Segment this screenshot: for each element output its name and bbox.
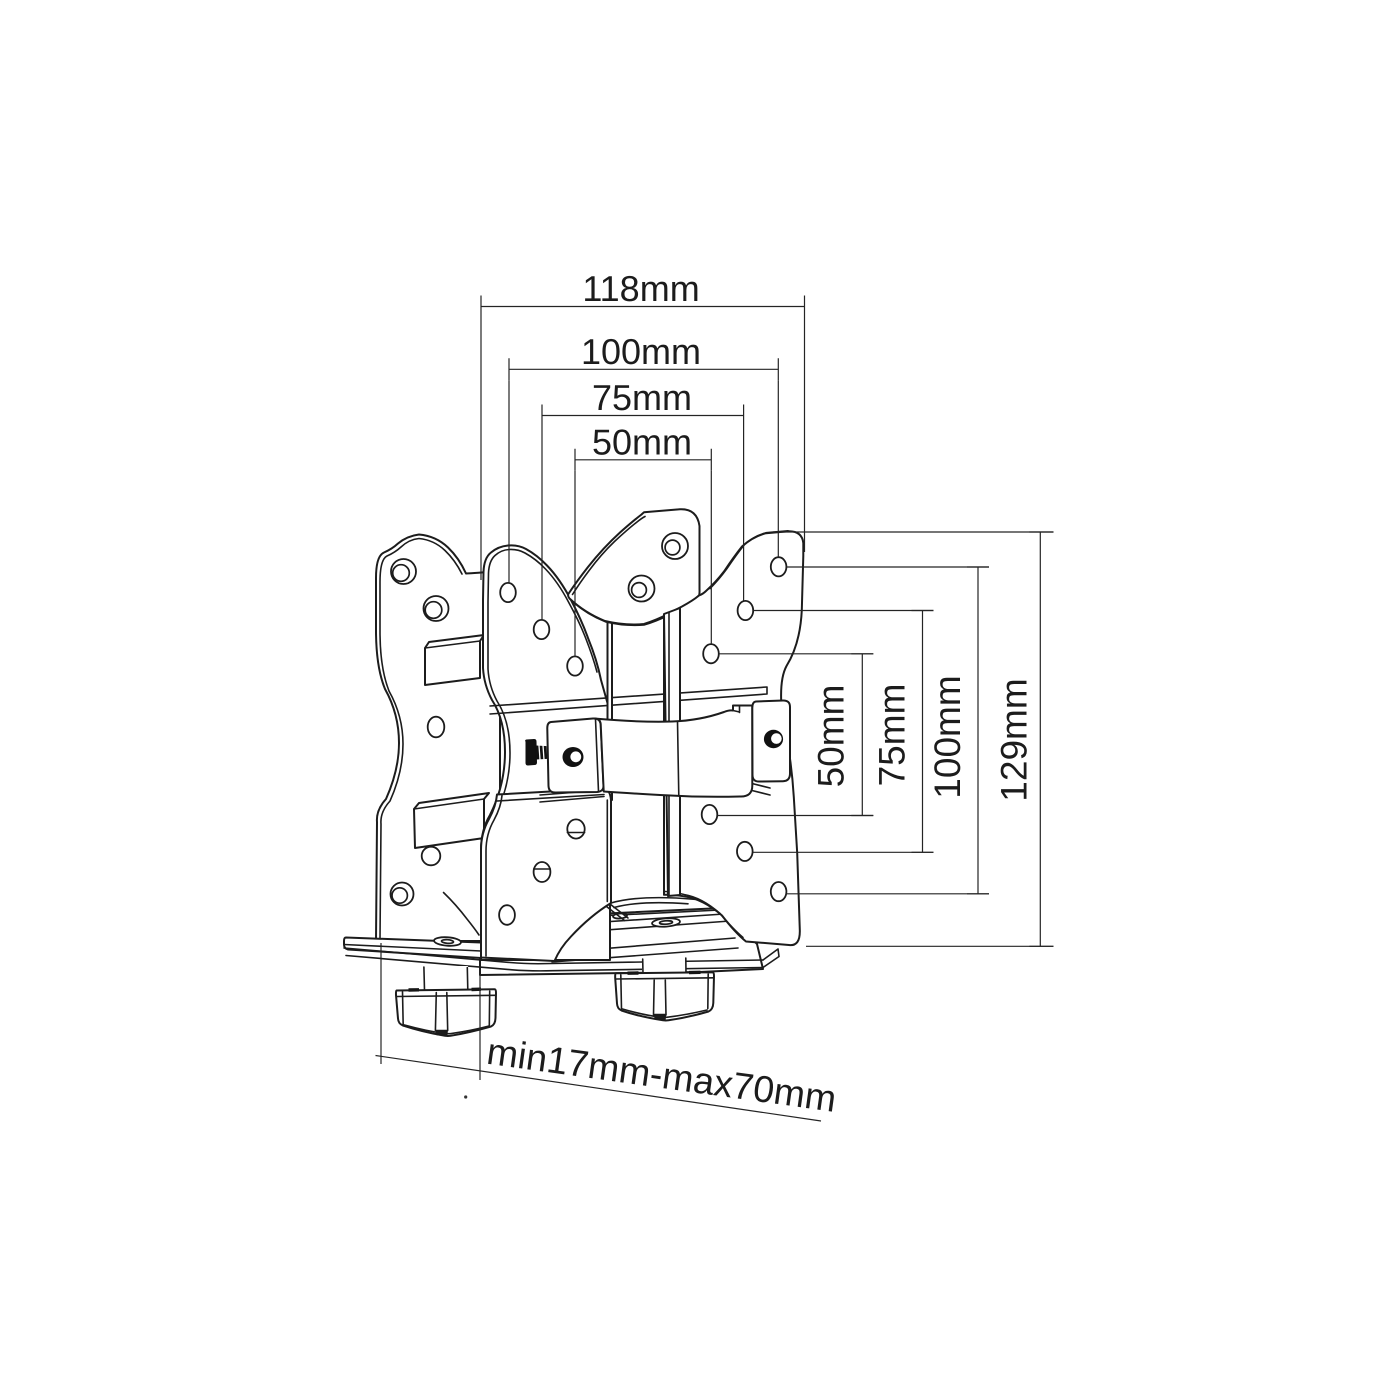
svg-text:50mm: 50mm — [592, 421, 692, 462]
svg-text:100mm: 100mm — [581, 331, 701, 372]
svg-text:100mm: 100mm — [927, 675, 968, 798]
svg-text:75mm: 75mm — [592, 377, 692, 418]
svg-text:75mm: 75mm — [872, 684, 913, 787]
svg-text:118mm: 118mm — [582, 268, 699, 309]
svg-text:50mm: 50mm — [811, 685, 852, 788]
svg-text:129mm: 129mm — [994, 678, 1035, 801]
